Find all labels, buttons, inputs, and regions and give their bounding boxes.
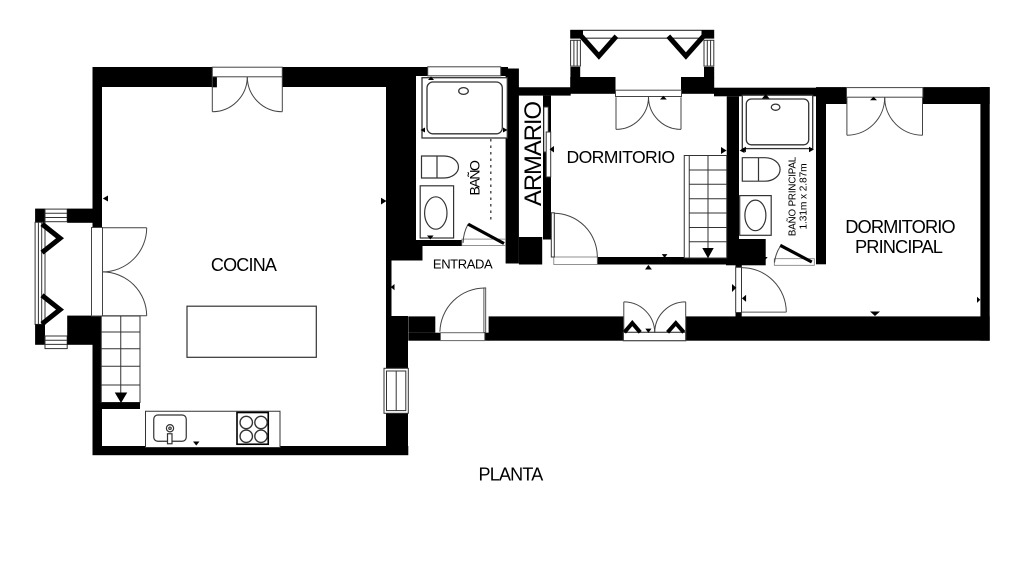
svg-text:ARMARIO: ARMARIO (520, 101, 547, 206)
svg-text:DORMITORIO: DORMITORIO (845, 216, 955, 237)
svg-text:1.31m x 2.87m: 1.31m x 2.87m (799, 163, 810, 229)
svg-text:ENTRADA: ENTRADA (433, 257, 493, 272)
svg-text:DORMITORIO: DORMITORIO (566, 147, 674, 167)
svg-text:COCINA: COCINA (211, 255, 277, 275)
svg-text:PLANTA: PLANTA (479, 465, 544, 485)
svg-text:PRINCIPAL: PRINCIPAL (855, 236, 943, 257)
svg-text:BAÑO: BAÑO (467, 160, 483, 196)
svg-text:BAÑO PRINCIPAL: BAÑO PRINCIPAL (788, 156, 799, 236)
